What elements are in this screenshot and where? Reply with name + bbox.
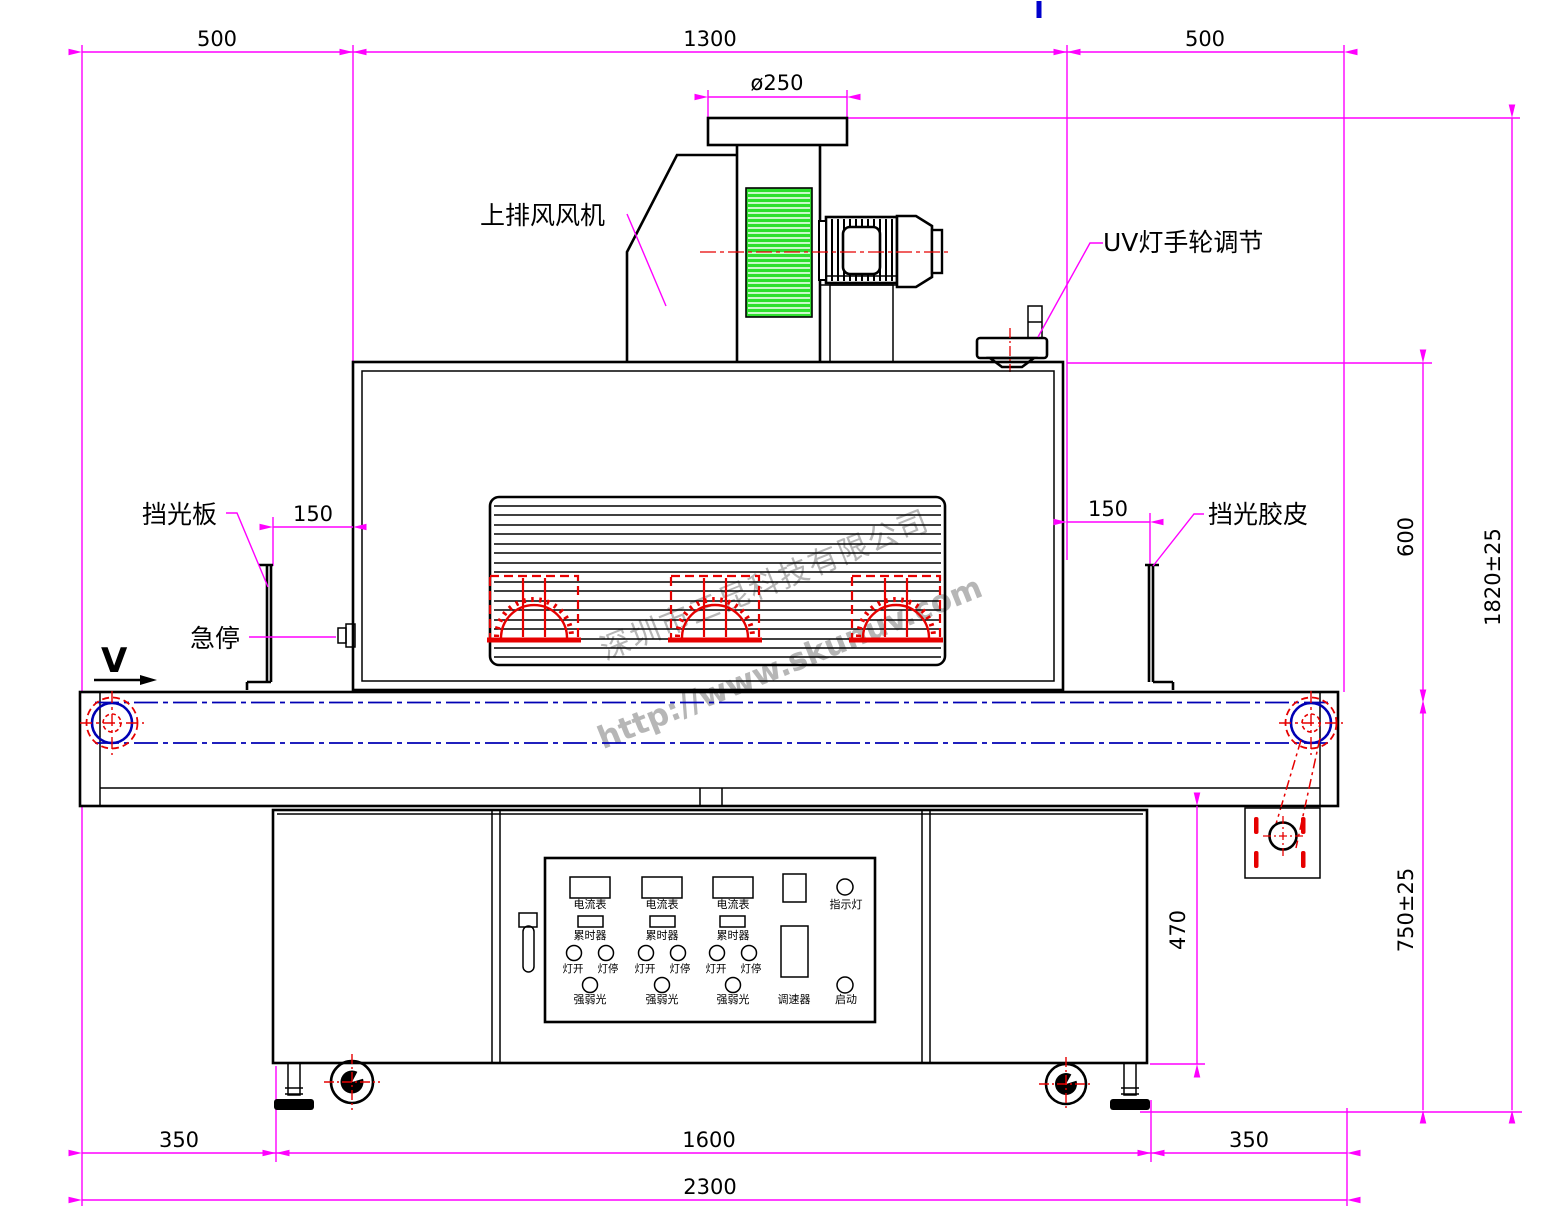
ammeter-1-label: 电流表 (574, 897, 607, 911)
uv-handwheel-label: UV灯手轮调节 (1103, 228, 1263, 257)
light-level-label-1: 强弱光 (574, 992, 607, 1006)
ammeter-3 (713, 877, 753, 898)
dim-lamp-house-height: 600 (1394, 517, 1418, 557)
belt-tension-lines (1276, 738, 1320, 848)
indicator-label: 指示灯 (830, 897, 863, 911)
light-level-button-1[interactable] (583, 978, 598, 993)
control-panel: 电流表 累时器 灯开 灯停 强弱光 电流表 累时器 灯开 灯停 强弱光 电流表 … (545, 858, 875, 1022)
lamp-off-button-1[interactable] (599, 946, 614, 961)
caster-right (1039, 1057, 1093, 1111)
lamp-off-button-3[interactable] (742, 946, 757, 961)
lamp-on-label-1: 灯开 (563, 963, 584, 975)
ammeter-2-label: 电流表 (646, 897, 679, 911)
ammeter-1 (570, 877, 610, 898)
shield-plate-label: 挡光板 (142, 500, 217, 529)
timer-2-label: 累时器 (646, 929, 679, 942)
right-dimensions: 600 750±25 1820±25 470 (1166, 118, 1512, 1110)
dim-total-height: 1820±25 (1481, 528, 1505, 626)
dim-total-length: 2300 (683, 1175, 736, 1199)
light-level-button-2[interactable] (655, 978, 670, 993)
bottom-dimensions: 350 1600 350 2300 (82, 1128, 1347, 1200)
gap-dimensions: 150 150 (273, 497, 1150, 527)
control-cabinet: 电流表 累时器 灯开 灯停 强弱光 电流表 累时器 灯开 灯停 强弱光 电流表 … (273, 810, 1150, 1111)
indicator-light (837, 879, 853, 895)
direction-label: V (101, 641, 128, 681)
tensioner-bracket (1245, 808, 1320, 878)
lamp-on-label-3: 灯开 (706, 963, 727, 975)
top-dimensions: 500 1300 500 ø250 (82, 27, 1344, 97)
emergency-stop-label: 急停 (190, 624, 240, 653)
shield-rubber-label: 挡光胶皮 (1208, 500, 1308, 529)
roller-left (80, 691, 144, 755)
light-level-label-3: 强弱光 (717, 992, 750, 1006)
timer-1-label: 累时器 (574, 929, 607, 942)
timer-3 (720, 916, 745, 927)
dim-top-center: 1300 (683, 27, 736, 51)
duct-flange (708, 118, 847, 145)
roller-right (1276, 691, 1343, 848)
dim-right-gap: 150 (1088, 497, 1128, 521)
conveyor (80, 691, 1343, 878)
lamp-on-label-2: 灯开 (635, 963, 656, 975)
dim-duct-diameter: ø250 (751, 71, 804, 95)
door-handle[interactable] (519, 913, 537, 972)
top-fan-label: 上排风风机 (480, 201, 605, 230)
start-label: 启动 (835, 993, 857, 1006)
lamp-on-button-3[interactable] (710, 946, 725, 961)
dim-top-left: 500 (197, 27, 237, 51)
uv-curing-machine-drawing: 深圳市三昆科技有限公司 http://www.skunuv.com 500 13… (0, 0, 1541, 1220)
dim-cabinet-height: 470 (1166, 910, 1190, 950)
dim-top-right: 500 (1185, 27, 1225, 51)
motor-pedestal (830, 285, 893, 362)
start-button[interactable] (837, 977, 853, 993)
speed-label: 调速器 (778, 993, 811, 1006)
light-shield-right (1145, 565, 1173, 690)
light-shield-left (247, 565, 273, 690)
speed-controller[interactable] (781, 926, 808, 977)
lamp-house (353, 362, 1063, 690)
ammeter-3-label: 电流表 (717, 897, 750, 911)
dim-conveyor-height: 750±25 (1394, 868, 1418, 952)
uv-lamp-1 (487, 576, 581, 640)
lamp-off-label-1: 灯停 (598, 962, 619, 975)
light-level-button-3[interactable] (726, 978, 741, 993)
lamp-on-button-1[interactable] (567, 946, 582, 961)
switch-square[interactable] (783, 874, 806, 902)
direction-arrow: V (94, 641, 157, 685)
cad-drawing-page: 深圳市三昆科技有限公司 http://www.skunuv.com 500 13… (0, 0, 1541, 1220)
direction-arrowhead (140, 675, 157, 685)
dim-bottom-left: 350 (159, 1128, 199, 1152)
dim-bottom-right: 350 (1229, 1128, 1269, 1152)
dim-bottom-center: 1600 (682, 1128, 735, 1152)
leveling-foot-right (1110, 1063, 1150, 1110)
ammeter-2 (642, 877, 682, 898)
timer-3-label: 累时器 (717, 929, 750, 942)
dim-left-gap: 150 (293, 502, 333, 526)
timer-1 (578, 916, 603, 927)
lamp-off-label-2: 灯停 (670, 962, 691, 975)
timer-2 (650, 916, 675, 927)
lamp-off-button-2[interactable] (671, 946, 686, 961)
lamp-on-button-2[interactable] (639, 946, 654, 961)
exhaust-fan-assembly (627, 118, 952, 362)
fan-housing (627, 155, 737, 362)
light-level-label-2: 强弱光 (646, 992, 679, 1006)
lamp-off-label-3: 灯停 (741, 962, 762, 975)
watermark-url: http://www.skunuv.com (593, 569, 988, 756)
leveling-foot-left (274, 1063, 314, 1110)
